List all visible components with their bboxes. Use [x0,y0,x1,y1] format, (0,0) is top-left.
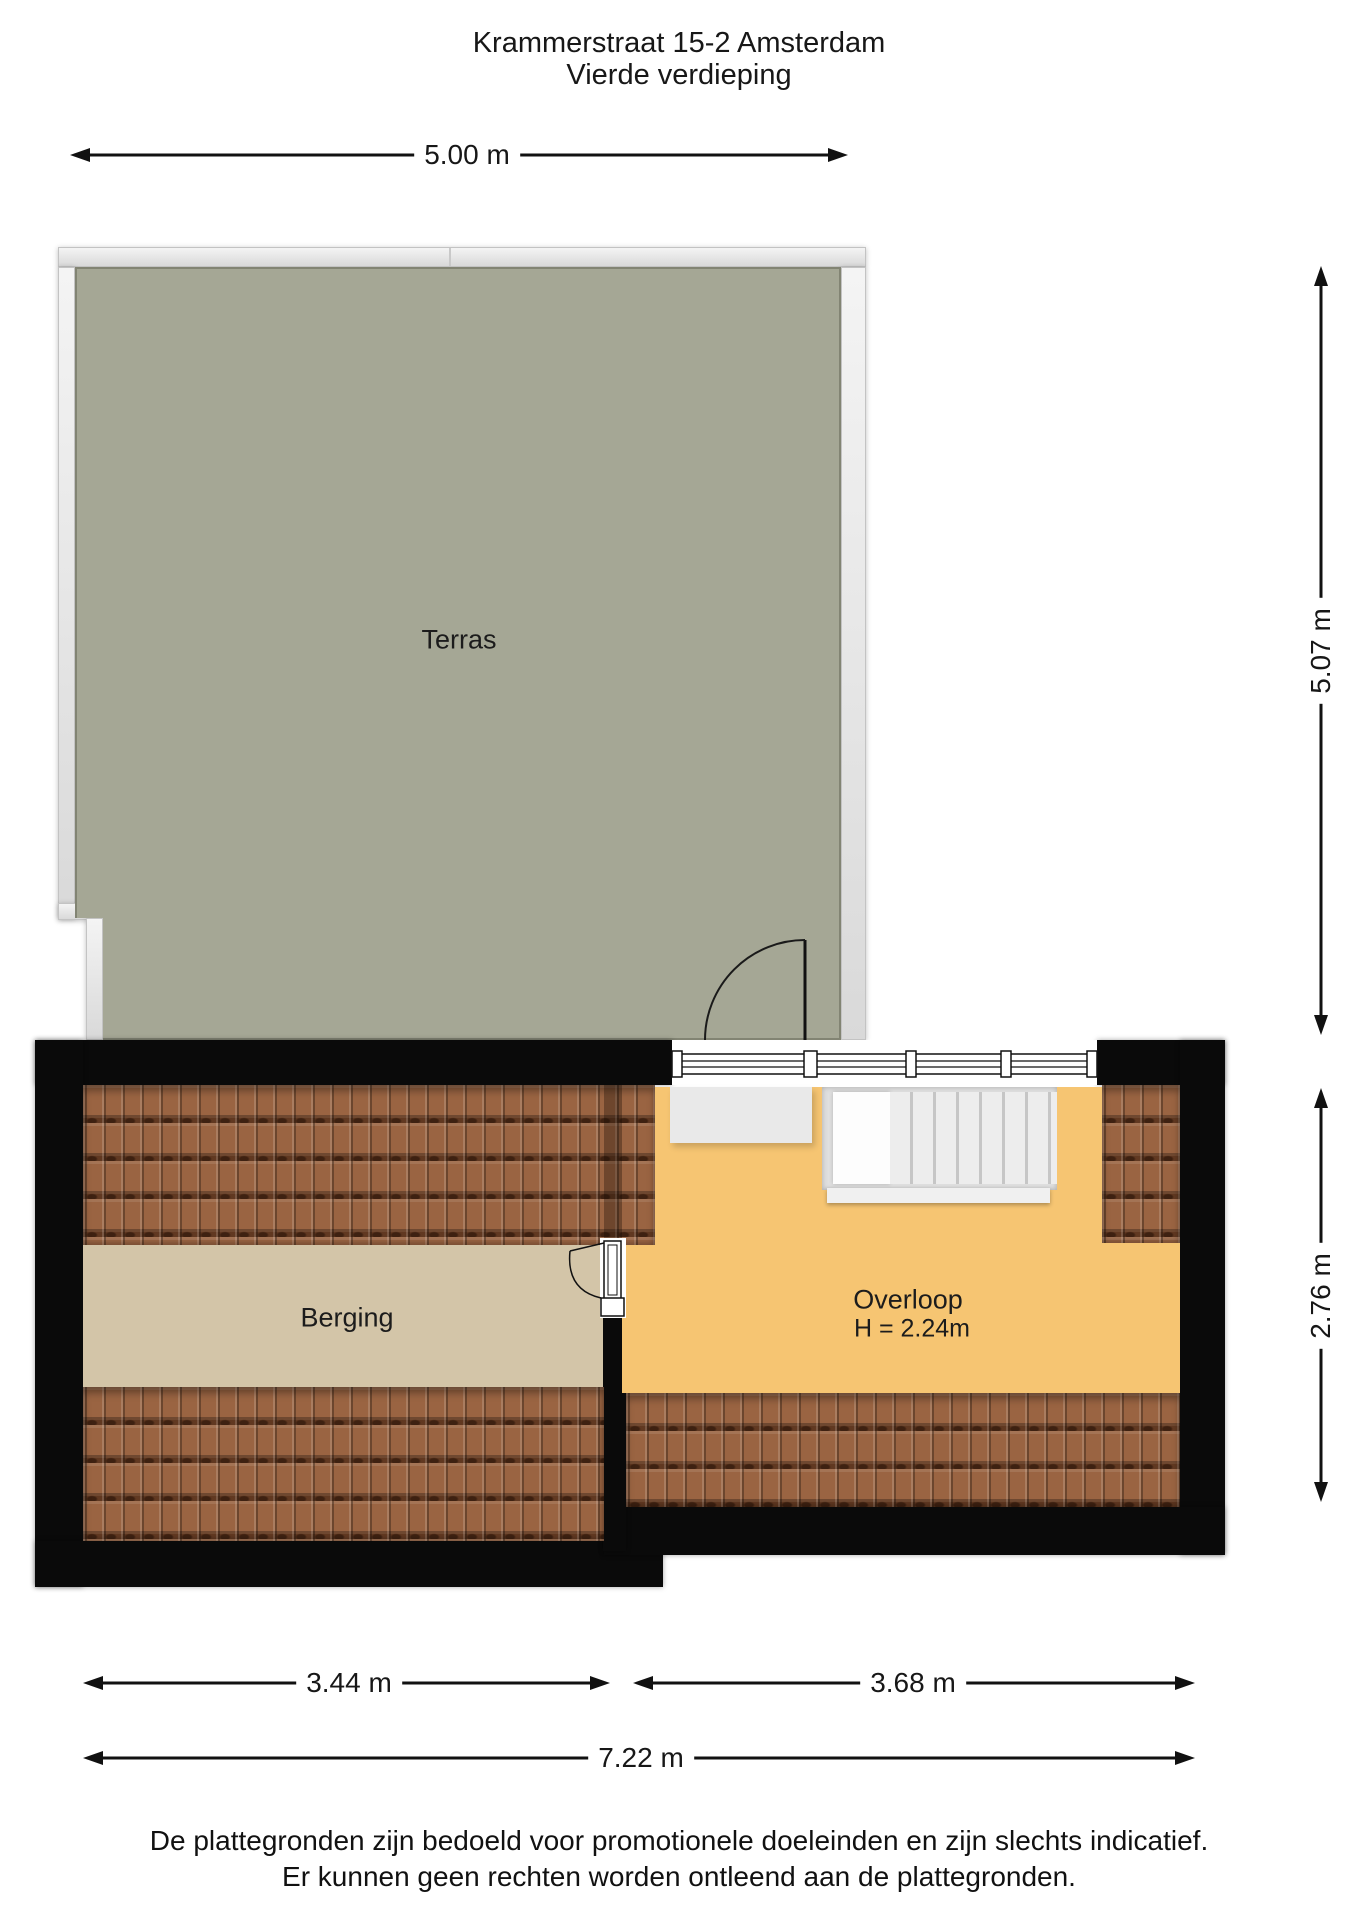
window-mullion [1087,1051,1097,1077]
dim-label-overloop-width: 3.68 m [860,1667,966,1699]
berging-door-frame [601,1298,624,1316]
room-label-overloop: Overloop [853,1285,963,1316]
dim-label-terrace-depth: 5.07 m [1305,598,1337,704]
arrowhead-right [590,1676,610,1690]
footer-disclaimer-line2: Er kunnen geen rechten worden ontleend a… [0,1860,1358,1894]
arrowhead-right [1175,1751,1195,1765]
arrowhead-right [1175,1676,1195,1690]
arrowhead-right [828,148,848,162]
arrowhead-left [70,148,90,162]
room-label-berging: Berging [300,1303,393,1334]
linework-overlay [0,0,1358,1920]
berging-door [570,1241,624,1316]
window-mullion [672,1051,682,1077]
arrowhead-down [1314,1482,1328,1502]
window-mullion [804,1051,817,1077]
berging-door-open-leaf [570,1243,604,1251]
berging-door-leaf [604,1241,621,1299]
floorplan-page: Krammerstraat 15-2 Amsterdam Vierde verd… [0,0,1358,1920]
terrace-door-leaf [804,940,807,1040]
arrowhead-up [1314,266,1328,286]
arrowhead-down [1314,1015,1328,1035]
terrace-door-arc [705,940,805,1040]
dim-label-terrace-width: 5.00 m [414,139,520,171]
window-mullion [1001,1051,1011,1077]
room-label-terras: Terras [421,625,496,656]
arrowhead-up [1314,1088,1328,1108]
overloop-height-note: H = 2.24m [854,1315,970,1344]
dim-label-attic-depth: 2.76 m [1305,1243,1337,1349]
window-mullion [906,1051,916,1077]
dim-label-berging-width: 3.44 m [296,1667,402,1699]
arrowhead-left [633,1676,653,1690]
window-symbol [672,1051,1097,1077]
arrowhead-left [83,1751,103,1765]
arrowhead-left [83,1676,103,1690]
dim-label-total-width: 7.22 m [588,1742,694,1774]
footer-disclaimer-line1: De plattegronden zijn bedoeld voor promo… [0,1824,1358,1858]
berging-door-arc [570,1251,601,1298]
